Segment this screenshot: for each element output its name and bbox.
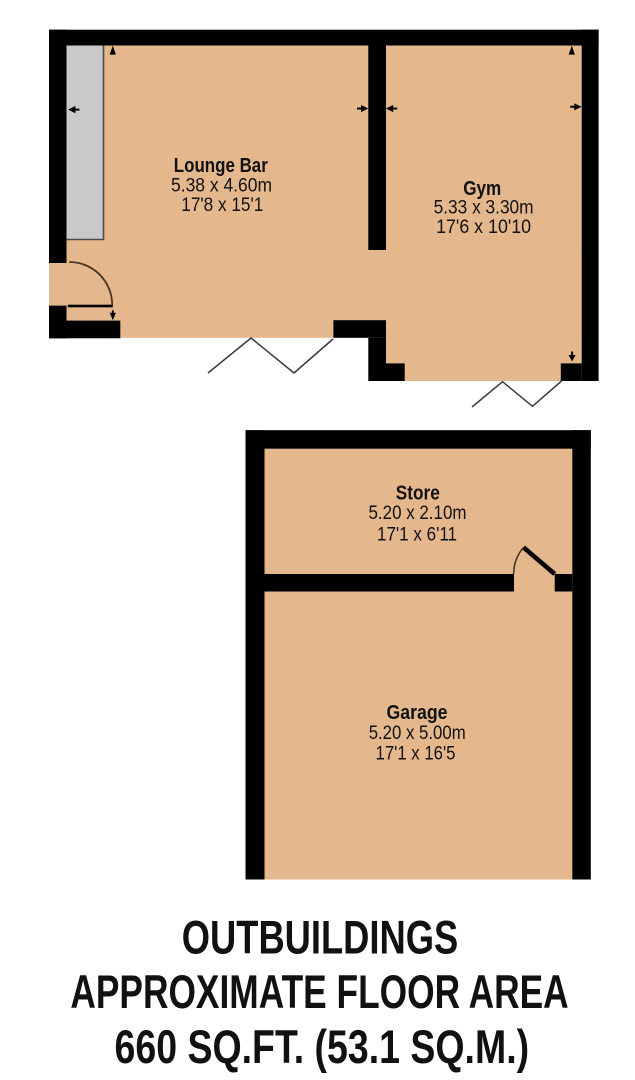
svg-text:5.20 x 2.10m: 5.20 x 2.10m	[369, 502, 467, 524]
svg-text:5.33 x 3.30m: 5.33 x 3.30m	[434, 196, 534, 218]
svg-text:5.20 x 5.00m: 5.20 x 5.00m	[369, 722, 466, 744]
svg-text:Garage: Garage	[387, 702, 448, 724]
svg-text:Lounge Bar: Lounge Bar	[174, 155, 268, 177]
svg-text:OUTBUILDINGS: OUTBUILDINGS	[182, 911, 458, 964]
svg-text:17'8 x 15'1: 17'8 x 15'1	[181, 194, 263, 216]
svg-text:17'1 x 6'11: 17'1 x 6'11	[377, 523, 457, 545]
svg-text:APPROXIMATE FLOOR AREA: APPROXIMATE FLOOR AREA	[70, 966, 568, 1019]
svg-text:17'1 x 16'5: 17'1 x 16'5	[376, 742, 456, 764]
svg-text:17'6 x 10'10: 17'6 x 10'10	[436, 216, 531, 238]
svg-text:660 SQ.FT. (53.1 SQ.M.): 660 SQ.FT. (53.1 SQ.M.)	[115, 1021, 530, 1074]
